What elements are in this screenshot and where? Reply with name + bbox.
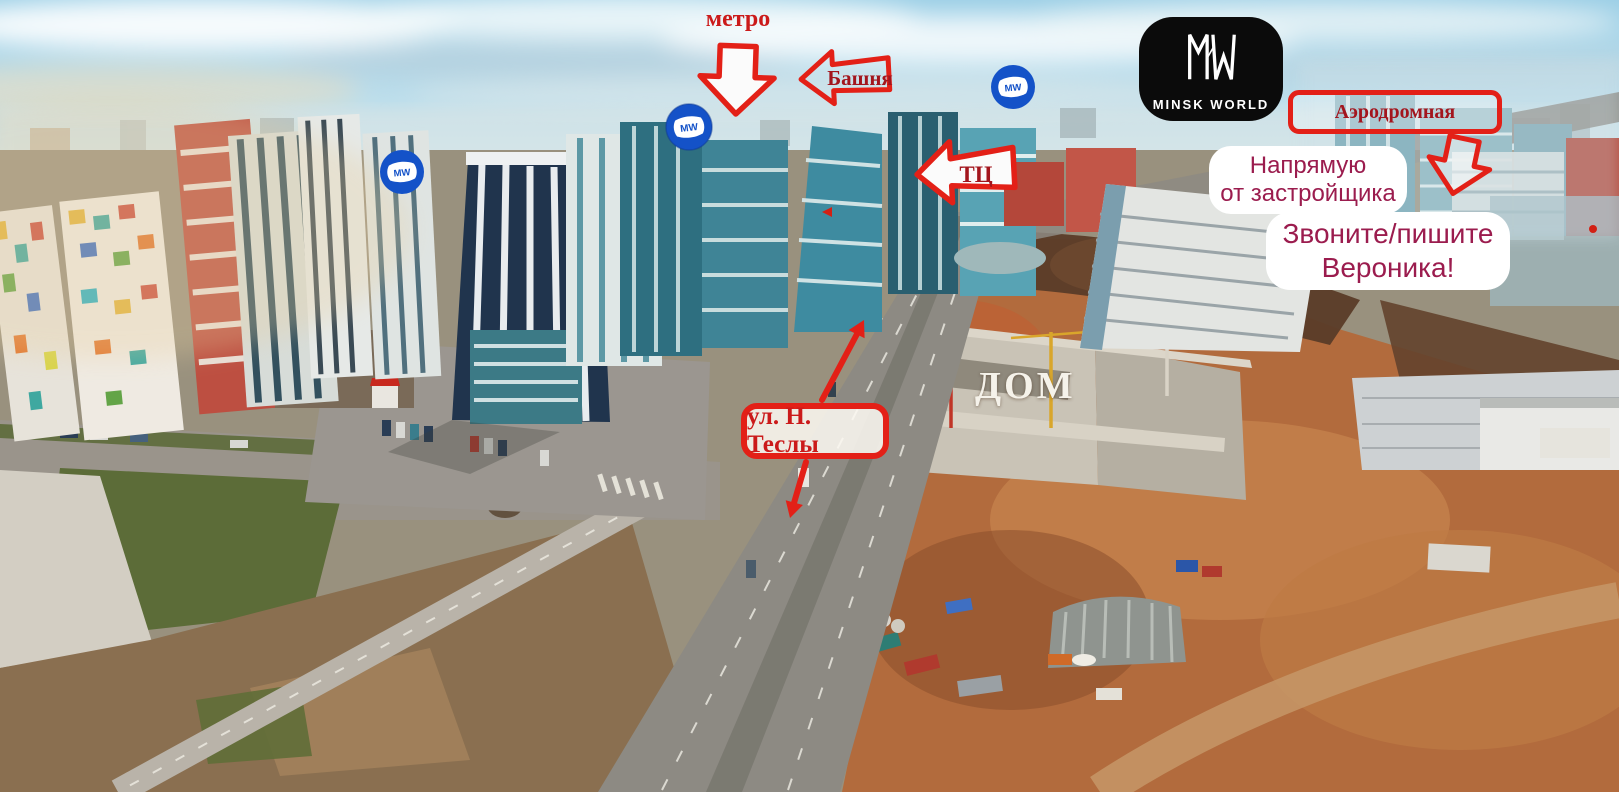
marker-monogram: MW [680, 122, 700, 135]
mw-map-marker-1[interactable]: MW [666, 104, 712, 150]
metro-label: метро [694, 6, 782, 33]
developer-callout: Напрямую от застройщика [1209, 146, 1407, 214]
logo-caption: MINSK WORLD [1153, 97, 1270, 112]
aerodromnaya-street-sign: Аэродромная [1288, 90, 1502, 134]
aerial-promo-view: Башня ТЦ MW [0, 0, 1619, 792]
minsk-world-logo: MINSK WORLD [1139, 17, 1283, 121]
tesla-street-sign: ул. Н. Теслы [741, 403, 889, 459]
mw-map-marker-3[interactable]: MW [991, 65, 1035, 109]
contact-callout: Звоните/пишите Вероника! [1266, 212, 1510, 290]
contact-line1: Звоните/пишите [1283, 217, 1494, 251]
marker-monogram: MW [1004, 82, 1022, 94]
marker-monogram: MW [393, 167, 411, 179]
center-towers [566, 122, 882, 366]
developer-line1: Напрямую [1250, 152, 1367, 180]
mw-monogram-icon [1178, 25, 1244, 87]
developer-line2: от застройщика [1220, 180, 1395, 208]
tesla-street-label: ул. Н. Теслы [747, 403, 883, 459]
contact-line2: Вероника! [1322, 251, 1455, 285]
aerodromnaya-label: Аэродромная [1335, 101, 1455, 124]
house-label: ДОМ [975, 364, 1076, 408]
mw-map-marker-2[interactable]: MW [380, 150, 424, 194]
